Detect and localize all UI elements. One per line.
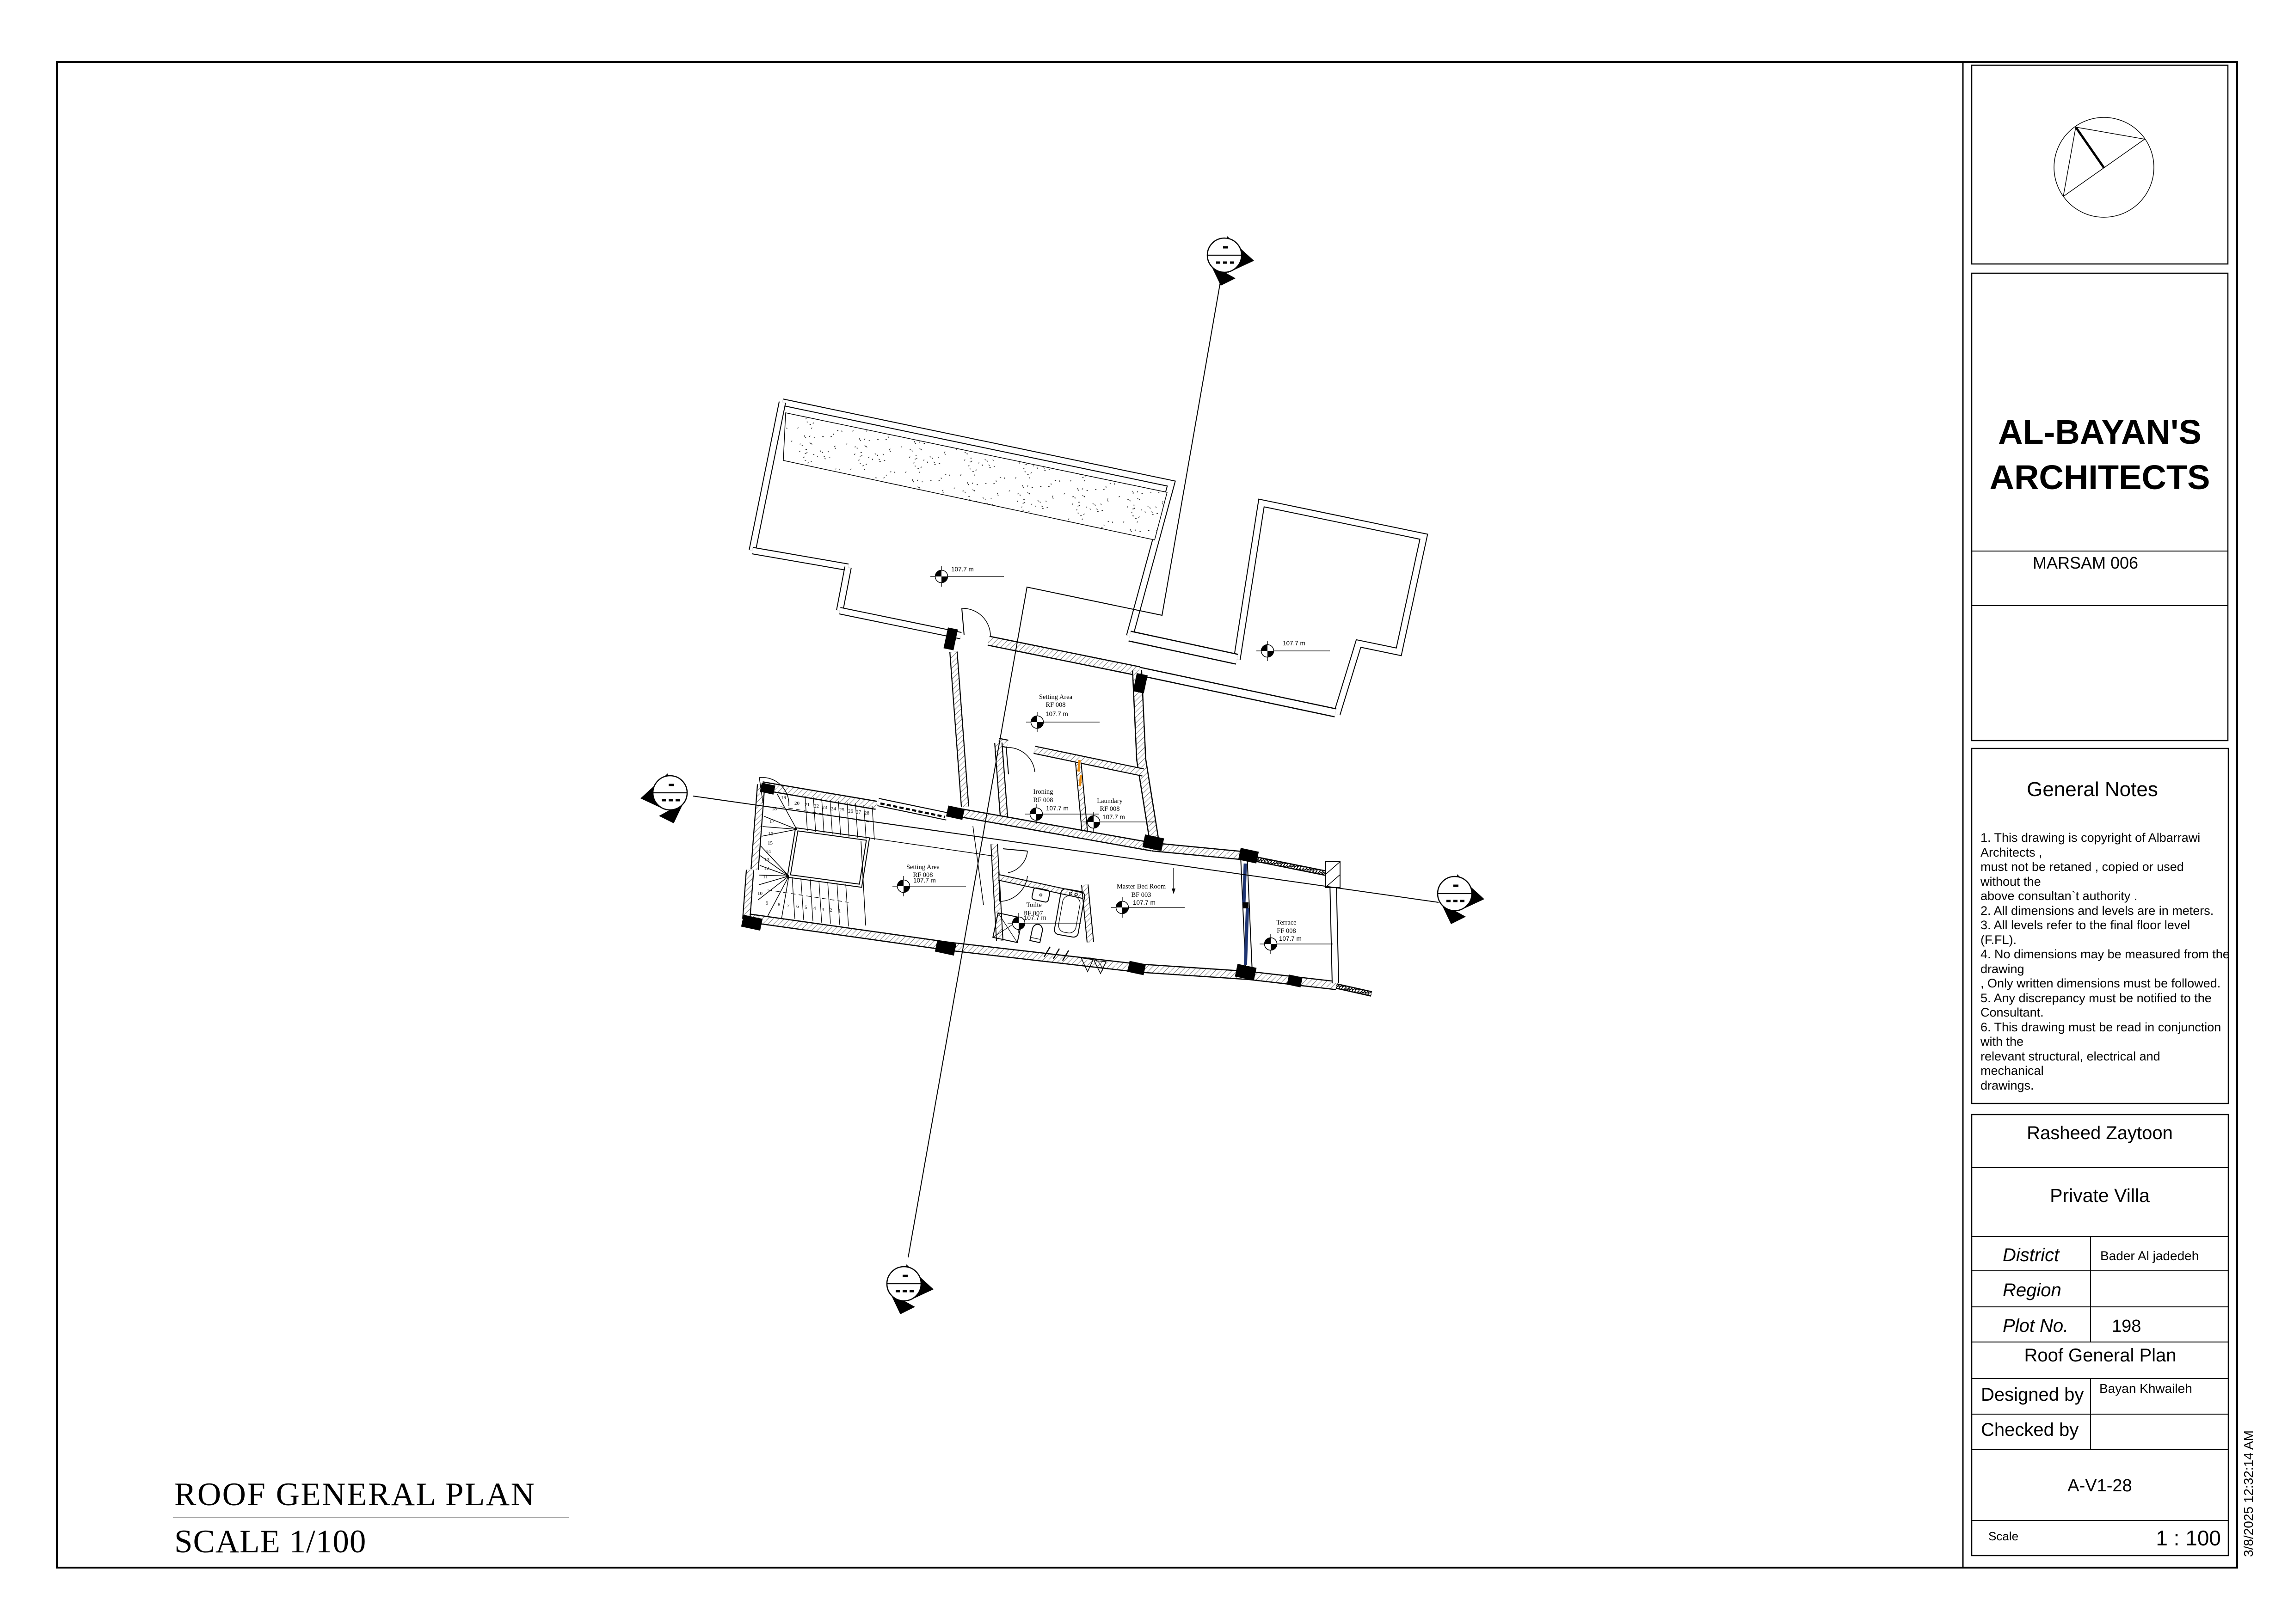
svg-text:6. This drawing must be read i: 6. This drawing must be read in conjunct… [1980,1020,2221,1034]
svg-text:Ironing: Ironing [1033,788,1053,796]
svg-text:Rasheed Zaytoon: Rasheed Zaytoon [2027,1123,2173,1143]
svg-text:without the: without the [1980,875,2041,889]
svg-text:22: 22 [814,803,819,809]
svg-text:Setting Area: Setting Area [906,864,940,871]
svg-text:Architects ,: Architects , [1980,846,2042,859]
svg-text:above consultan`t authority .: above consultan`t authority . [1980,889,2137,903]
svg-text:Toilte: Toilte [1026,901,1042,909]
svg-text:1 : 100: 1 : 100 [2156,1526,2221,1550]
svg-text:ARCHITECTS: ARCHITECTS [1990,458,2210,496]
svg-text:4: 4 [813,906,816,911]
svg-text:Master Bed Room: Master Bed Room [1117,883,1166,890]
svg-text:FF 008: FF 008 [1277,927,1296,935]
svg-text:Region: Region [2003,1280,2061,1300]
svg-text:3. All levels refer to the fin: 3. All levels refer to the final floor l… [1980,918,2190,932]
svg-text:107.7 m: 107.7 m [1102,814,1125,821]
svg-text:, Only written dimensions must: , Only written dimensions must be follow… [1980,976,2220,990]
svg-text:1. This drawing is copyright o: 1. This drawing is copyright of Albarraw… [1980,831,2200,845]
svg-text:15: 15 [768,840,773,846]
svg-text:10: 10 [757,891,763,896]
svg-text:107.7 m: 107.7 m [1046,711,1068,717]
svg-text:107.7 m: 107.7 m [1279,935,1302,942]
svg-text:RF 008: RF 008 [1046,701,1065,709]
svg-text:Plot No.: Plot No. [2003,1316,2068,1336]
svg-text:4. No dimensions may be measur: 4. No dimensions may be measured from th… [1980,947,2230,961]
svg-text:17: 17 [769,819,775,824]
svg-text:7: 7 [787,903,790,908]
svg-text:General Notes: General Notes [2027,778,2158,801]
svg-text:(F.FL).: (F.FL). [1980,933,2017,947]
svg-text:2: 2 [830,907,832,913]
svg-text:BF 003: BF 003 [1131,891,1151,899]
svg-text:26: 26 [848,809,854,814]
svg-text:Designed by: Designed by [1981,1385,2084,1405]
svg-text:107.7 m: 107.7 m [1283,640,1305,647]
svg-text:5: 5 [805,905,807,910]
svg-text:8: 8 [778,902,781,907]
svg-text:AL-BAYAN'S: AL-BAYAN'S [1998,413,2202,451]
svg-text:Private Villa: Private Villa [2050,1185,2150,1206]
svg-text:28: 28 [864,810,870,816]
svg-text:2. All dimensions and levels a: 2. All dimensions and levels are in mete… [1980,904,2214,918]
svg-text:MARSAM 006: MARSAM 006 [2033,553,2138,572]
svg-text:SCALE 1/100: SCALE 1/100 [174,1524,366,1560]
svg-text:Scale: Scale [1988,1529,2018,1543]
svg-text:5. Any discrepancy must be not: 5. Any discrepancy must be notified to t… [1980,991,2212,1005]
svg-text:Setting Area: Setting Area [1039,693,1073,701]
svg-text:198: 198 [2112,1317,2141,1336]
svg-text:1: 1 [838,908,841,914]
svg-text:14: 14 [766,849,771,854]
svg-text:Laundary: Laundary [1097,797,1123,805]
svg-text:RF 008: RF 008 [1100,805,1119,813]
svg-text:relevant structural, electrica: relevant structural, electrical and [1980,1049,2160,1063]
svg-text:21: 21 [805,802,810,808]
svg-text:6: 6 [796,904,799,909]
svg-text:20: 20 [794,801,800,806]
svg-text:19: 19 [781,795,787,801]
svg-text:107.7 m: 107.7 m [951,566,974,573]
svg-text:RF 008: RF 008 [1033,797,1053,804]
svg-text:24: 24 [831,806,836,812]
svg-text:with the: with the [1980,1035,2023,1048]
svg-text:drawings.: drawings. [1980,1079,2034,1092]
svg-text:12: 12 [764,866,769,871]
svg-text:Bader Al jadedeh: Bader Al jadedeh [2100,1249,2199,1263]
svg-text:District: District [2003,1245,2060,1265]
svg-text:Checked by: Checked by [1981,1420,2079,1440]
svg-text:RF 008: RF 008 [913,871,933,879]
svg-text:must not be retaned , copied o: must not be retaned , copied or used [1980,860,2184,874]
svg-text:9: 9 [766,901,769,906]
svg-text:107.7 m: 107.7 m [1133,899,1156,906]
svg-text:drawing: drawing [1980,962,2024,976]
svg-text:ROOF GENERAL PLAN: ROOF GENERAL PLAN [174,1477,535,1513]
svg-text:13: 13 [764,857,770,863]
svg-text:25: 25 [839,807,845,813]
svg-text:11: 11 [763,874,768,880]
svg-text:3/8/2025 12:32:14 AM: 3/8/2025 12:32:14 AM [2241,1430,2256,1557]
svg-text:Terrace: Terrace [1276,919,1296,926]
svg-text:BF 007: BF 007 [1023,910,1043,917]
svg-text:107.7 m: 107.7 m [1046,805,1069,812]
svg-text:mechanical: mechanical [1980,1064,2044,1078]
svg-text:16: 16 [768,831,774,837]
svg-text:A-V1-28: A-V1-28 [2067,1476,2132,1495]
svg-text:27: 27 [856,809,861,815]
svg-text:Bayan Khwaileh: Bayan Khwaileh [2099,1381,2192,1396]
svg-text:23: 23 [822,805,828,810]
svg-text:Consultant.: Consultant. [1980,1005,2044,1019]
svg-text:3: 3 [822,907,824,913]
svg-text:Roof General Plan: Roof General Plan [2024,1345,2176,1366]
